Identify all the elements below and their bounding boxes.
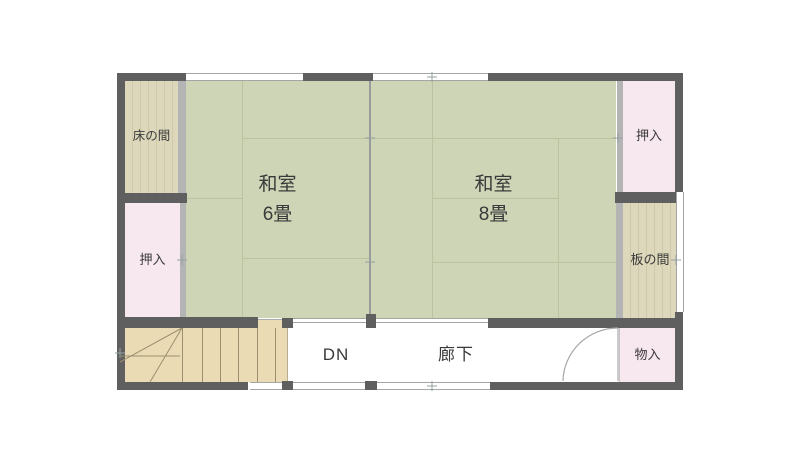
stair-tread [257, 328, 258, 382]
stair-tread [220, 328, 221, 382]
stair-tread [275, 328, 276, 382]
label-stairs-dn: DN [306, 338, 366, 372]
stairs-area [258, 320, 282, 328]
wall-corridor-top [488, 318, 683, 328]
wall-tokonoma-bottom [125, 193, 187, 203]
wall-left [117, 73, 125, 390]
oshiire-right-text: 押入 [636, 126, 662, 146]
wall-oshiire-right-bottom [615, 192, 683, 203]
window-top-west [186, 73, 303, 81]
door-swing-arc [563, 328, 618, 381]
window-bottom-1 [250, 382, 282, 390]
wall-pillar [282, 318, 293, 328]
floor-plan: 床の間 押入 和室 6畳 和室 8畳 押入 板の間 物入 DN 廊下 [0, 0, 800, 472]
tokonoma-text: 床の間 [133, 127, 171, 146]
stair-tread [238, 328, 239, 382]
wall-bottom-2 [490, 382, 683, 390]
label-monoire: 物入 [620, 328, 675, 382]
label-oshiire-right: 押入 [623, 81, 675, 192]
wall-top-3 [488, 73, 683, 81]
washitsu8-size: 8畳 [479, 200, 509, 229]
washitsu6-size: 6畳 [263, 200, 293, 229]
itanoma-text: 板の間 [630, 250, 669, 270]
label-washitsu8: 和室 8畳 [371, 81, 616, 318]
stairs-corridor-edge [287, 320, 288, 382]
stairs-room-edge [258, 319, 282, 320]
washitsu8-name: 和室 [474, 170, 512, 199]
oshiire-left-text: 押入 [139, 250, 165, 270]
stairs-dn-text: DN [323, 342, 350, 368]
label-corridor: 廊下 [420, 338, 492, 372]
label-washitsu6: 和室 6畳 [186, 81, 369, 318]
wall-top-1 [117, 73, 186, 81]
window-top-east [373, 73, 488, 81]
stair-tread [202, 328, 203, 382]
monoire-text: 物入 [634, 345, 660, 365]
stair-tread [182, 328, 183, 382]
wall-bottom-1 [117, 382, 248, 390]
window-bottom-3 [377, 382, 490, 390]
wall-oshiire-left-bottom [125, 317, 258, 328]
wall-top-2 [303, 73, 373, 81]
label-itanoma: 板の間 [621, 203, 679, 318]
stairs-area [125, 328, 287, 382]
fusuma-washitsu6-corridor [293, 318, 366, 323]
corridor-text: 廊下 [438, 342, 474, 368]
fusuma-washitsu8-corridor [376, 318, 488, 323]
wall-pillar [365, 381, 377, 390]
washitsu6-name: 和室 [258, 170, 296, 199]
wall-pillar [282, 381, 293, 390]
wall-right-top [675, 73, 683, 192]
partition-tokonoma-east [178, 81, 186, 193]
window-bottom-2 [293, 382, 365, 390]
label-oshiire-left: 押入 [125, 203, 180, 317]
label-tokonoma: 床の間 [125, 81, 178, 193]
